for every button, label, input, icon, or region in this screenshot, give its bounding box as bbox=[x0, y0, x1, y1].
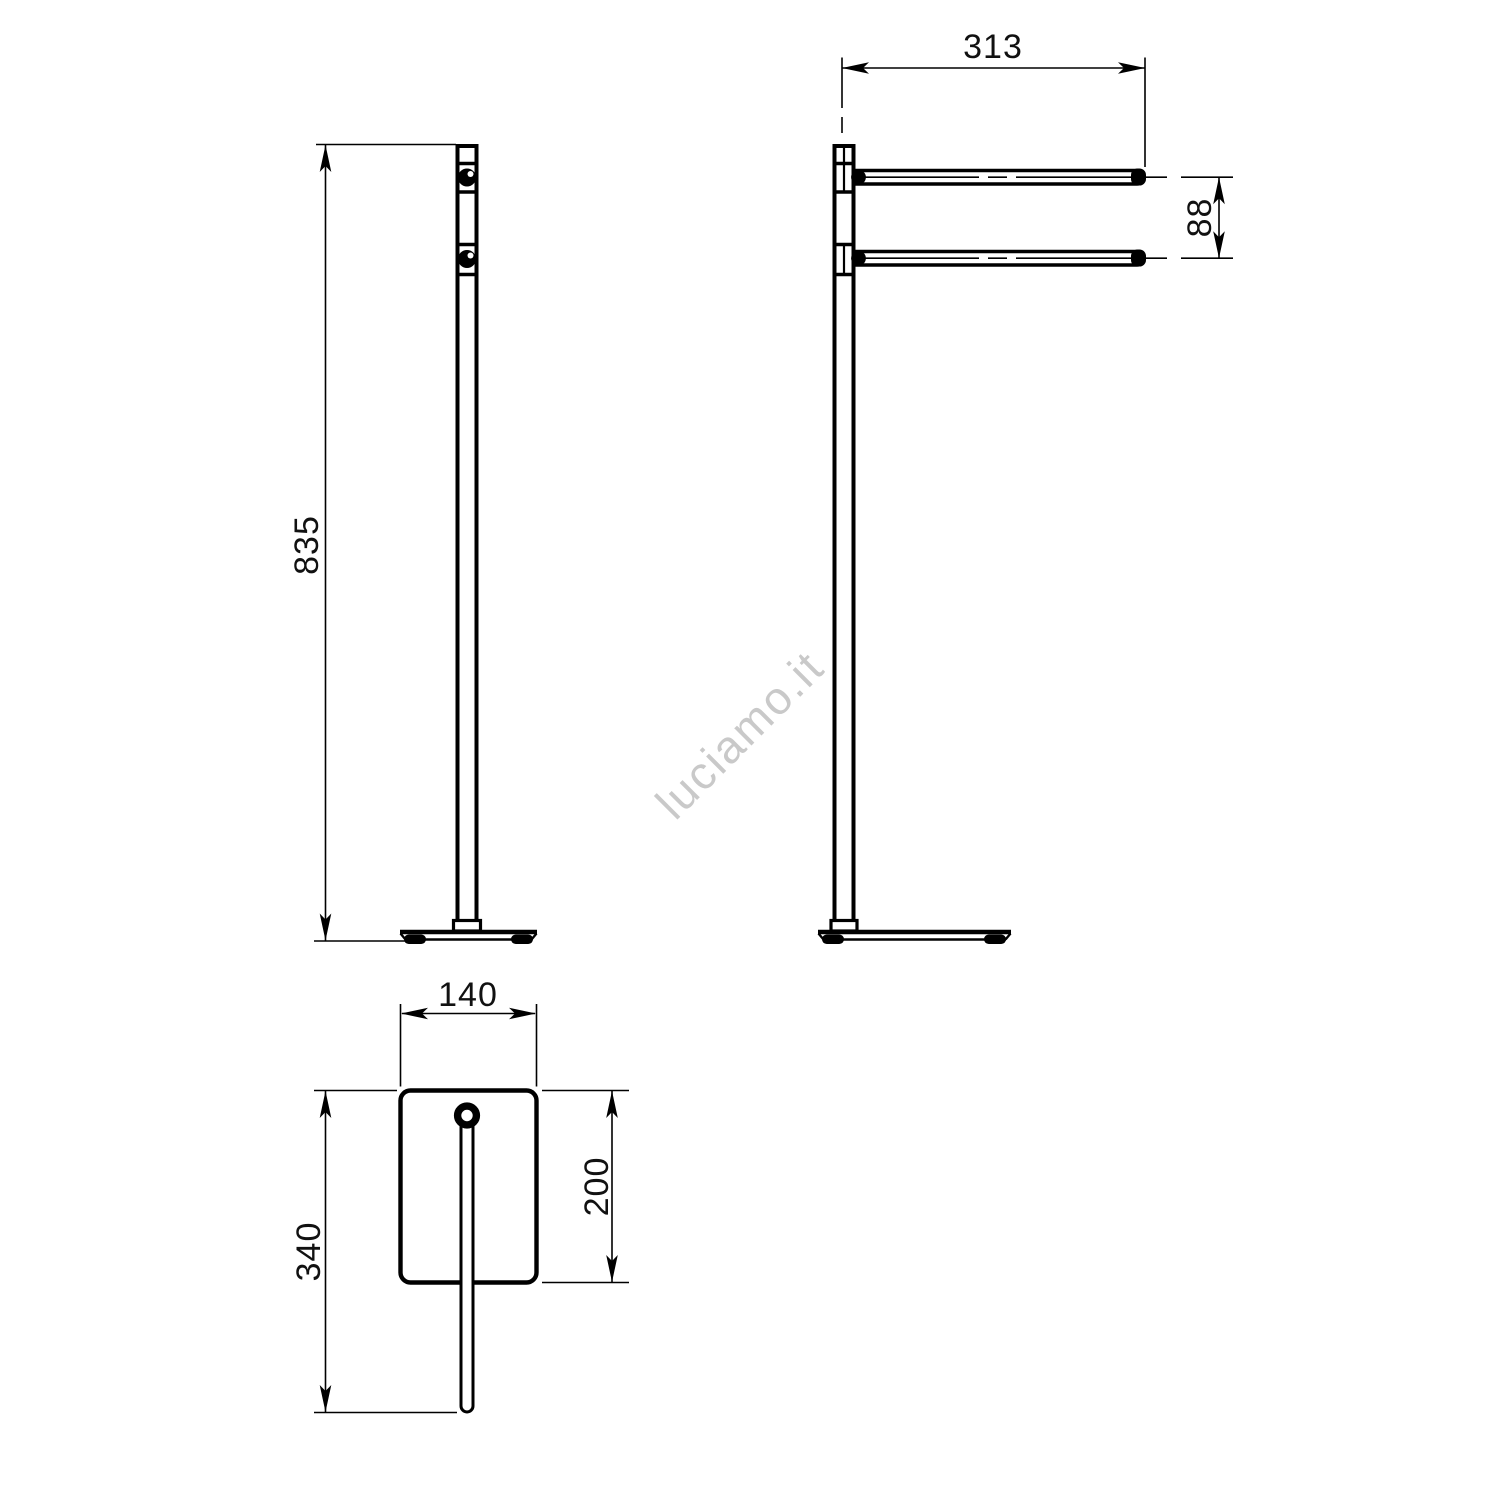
screw-highlight bbox=[468, 171, 474, 177]
screw-highlight bbox=[468, 253, 474, 259]
watermark-text: luciamo.it bbox=[646, 641, 834, 829]
bar-pivot bbox=[851, 251, 866, 266]
base-plate-edge bbox=[401, 934, 406, 940]
base-plate-edge bbox=[532, 934, 537, 940]
base-plate-edge bbox=[1006, 934, 1011, 940]
base-plate-edge bbox=[819, 934, 824, 940]
bar-hub-screw bbox=[458, 250, 476, 268]
pole-section-plan bbox=[458, 1106, 477, 1125]
pole-base-collar bbox=[831, 921, 857, 932]
technical-drawing-page: luciamo.it 835 313 bbox=[0, 0, 1500, 1500]
dimension-label-overall-depth: 340 bbox=[290, 1222, 328, 1282]
dimension-label-base-width: 140 bbox=[438, 976, 498, 1014]
plan-view: 140 340 200 bbox=[290, 976, 629, 1413]
dimension-label-base-depth: 200 bbox=[578, 1157, 616, 1217]
dimension-label-height: 835 bbox=[288, 515, 326, 575]
dimension-label-bar-spacing: 88 bbox=[1181, 198, 1219, 238]
side-view: 313 88 bbox=[818, 28, 1233, 944]
bar-hub-screw bbox=[458, 169, 476, 187]
towel-bar-plan bbox=[461, 1112, 473, 1412]
front-view: 835 bbox=[288, 145, 537, 945]
pole-base-collar bbox=[454, 921, 481, 932]
dimension-label-bar-length: 313 bbox=[963, 28, 1023, 66]
watermark: luciamo.it bbox=[646, 641, 834, 829]
bar-pivot bbox=[851, 170, 866, 185]
technical-drawing-svg: luciamo.it 835 313 bbox=[0, 0, 1500, 1500]
